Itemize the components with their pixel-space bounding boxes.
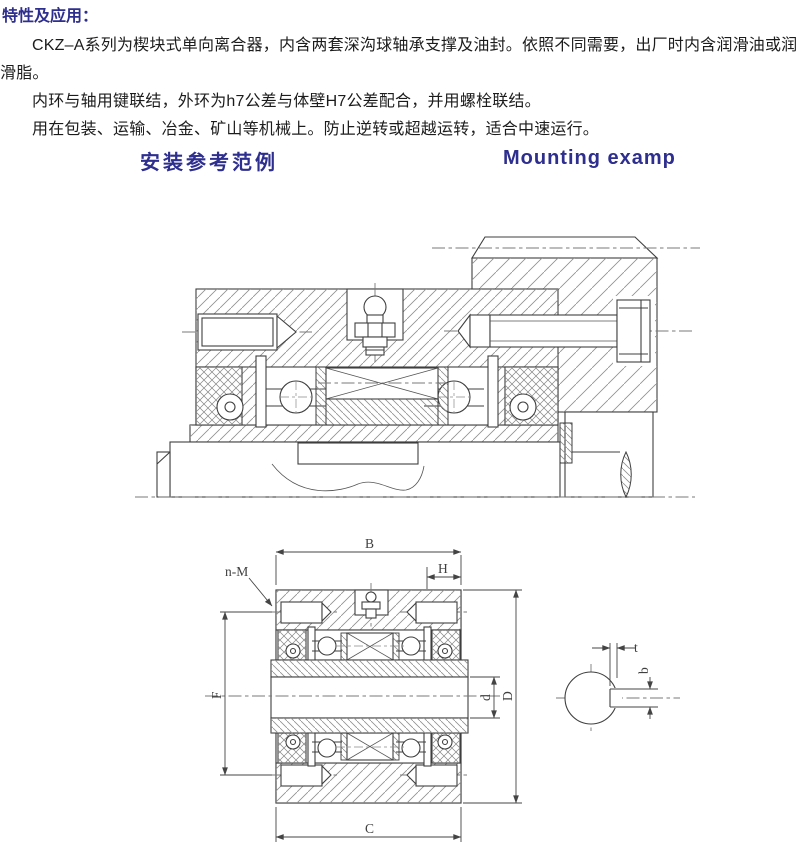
dim-label-F: F [209,691,224,699]
left-lube-port [217,394,243,420]
dim-label-B: B [365,536,374,551]
dim-label-H: H [438,561,448,576]
key [298,443,418,464]
dimensioned-section-drawing: B H n-M F d D C [205,536,680,842]
top-bearing-band [276,627,461,662]
technical-drawings: B H n-M F d D C [0,0,800,847]
inner-ring [205,660,500,733]
dim-label-D: D [500,691,515,701]
dim-label-d: d [478,694,493,701]
bearing-band [196,356,558,427]
right-lube-port [510,394,536,420]
mounting-example-drawing [135,237,700,497]
page: { "doc": { "title": "特性及应用：", "paragraph… [0,0,800,847]
dim-label-b: b [636,667,651,674]
dim-label-t: t [634,640,638,655]
keyway-detail: t b [556,640,680,732]
dim-label-C: C [365,821,374,836]
bottom-bearing-band [276,731,461,766]
dim-label-nM: n-M [225,564,248,579]
bolt-hex-head [617,300,650,362]
